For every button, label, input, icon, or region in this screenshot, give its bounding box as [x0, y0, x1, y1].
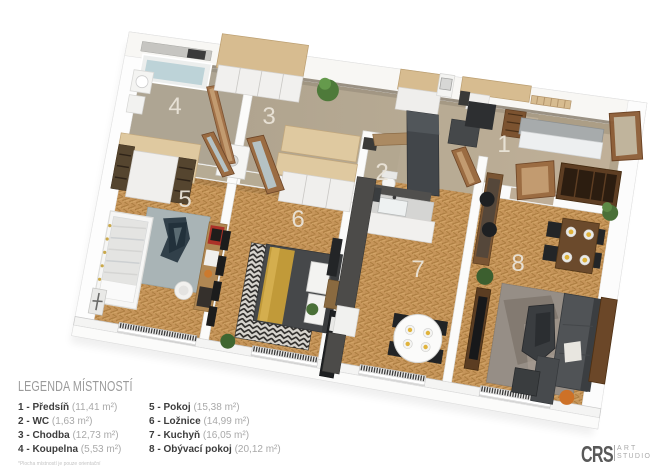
- svg-text:7: 7: [411, 256, 424, 283]
- svg-text:1: 1: [497, 131, 510, 158]
- svg-text:4: 4: [168, 93, 181, 120]
- svg-text:8: 8: [511, 250, 524, 277]
- svg-text:3: 3: [262, 103, 275, 130]
- svg-text:6: 6: [291, 206, 304, 233]
- svg-text:5: 5: [178, 186, 191, 213]
- svg-text:2: 2: [375, 159, 388, 186]
